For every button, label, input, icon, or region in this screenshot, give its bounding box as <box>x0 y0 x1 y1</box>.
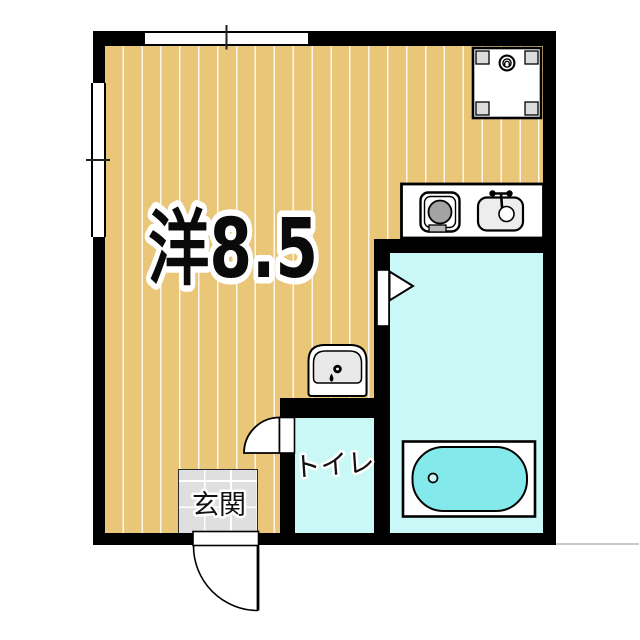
kitchen-counter <box>402 184 544 238</box>
basin-faucet-center <box>336 368 339 371</box>
toilet-door-leaf <box>280 418 295 454</box>
sink-faucet-knob <box>506 190 512 196</box>
bathtub-drain-icon <box>429 474 438 483</box>
bathroom-door-swing-arrow-icon <box>390 272 414 301</box>
entrance-door-swing-area <box>194 546 259 611</box>
washer-faucet-icon <box>500 56 515 71</box>
main-room-label: 洋8.5 <box>148 202 318 297</box>
floorplan-canvas: 洋8.5 トイレ 玄関 <box>0 0 640 640</box>
washer-pan-corner <box>525 51 538 64</box>
entrance-door <box>193 532 259 611</box>
entrance-label: 玄関 <box>192 490 246 521</box>
washer-pan-corner <box>476 51 489 64</box>
washer-pan-corner <box>525 102 538 115</box>
stove-burner-icon <box>429 201 452 224</box>
toilet-door <box>244 418 295 454</box>
wash-basin-icon <box>309 345 367 396</box>
toilet-door-swing-arc <box>244 418 280 454</box>
bathroom-door-leaf <box>377 270 389 326</box>
sink-drain-icon <box>499 207 514 222</box>
bathtub-icon <box>403 442 535 517</box>
washing-machine-pan-icon <box>473 48 541 118</box>
fixtures-overlay: 洋8.5 トイレ 玄関 <box>0 0 640 640</box>
sink-faucet-knob <box>489 190 495 196</box>
washer-pan-corner <box>476 102 489 115</box>
entrance-door-opening <box>193 532 259 546</box>
bathroom-door <box>377 270 413 326</box>
toilet-label: トイレ <box>293 447 376 484</box>
stove-grease-tray <box>429 225 446 232</box>
